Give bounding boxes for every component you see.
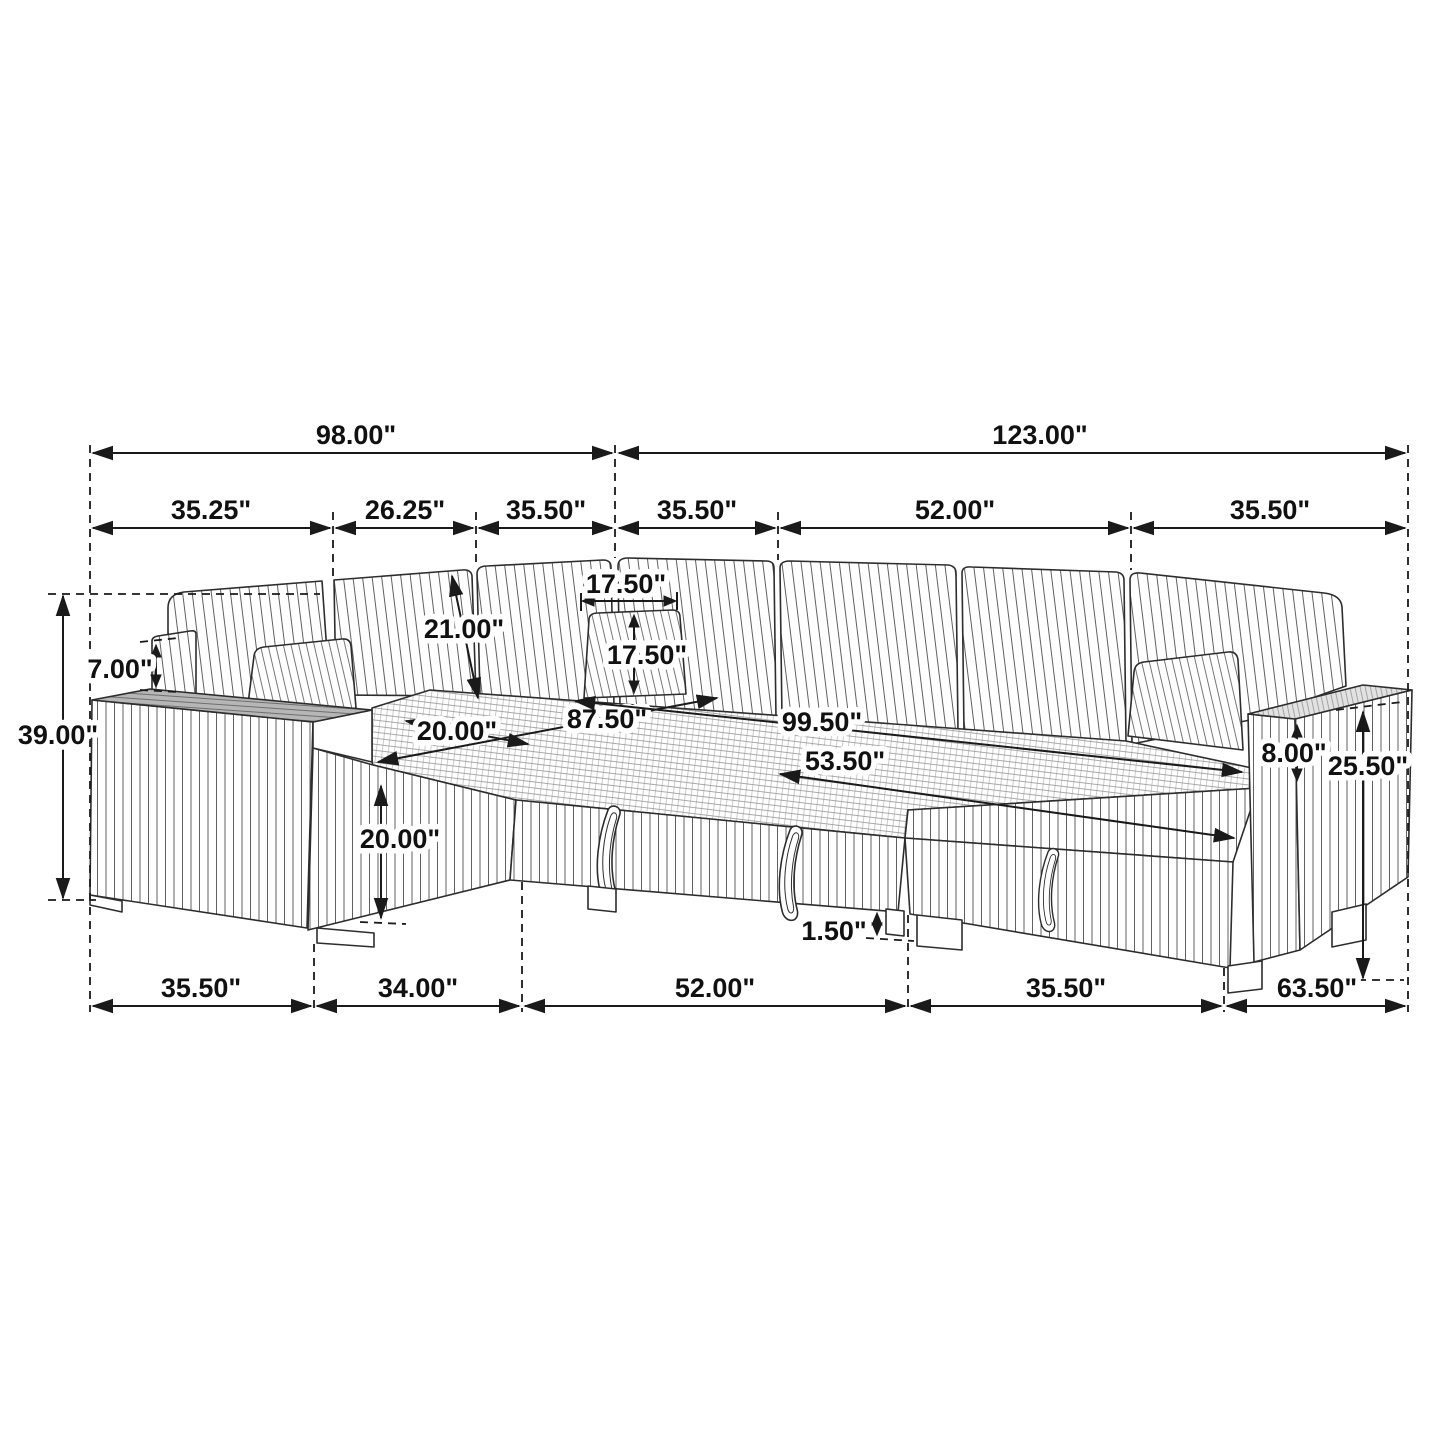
sofa-dimension-diagram: 98.00" 123.00" 35.25" 26.25" 35.50" 35.5… bbox=[0, 0, 1445, 1445]
left-arm-front-face bbox=[90, 700, 313, 928]
dim-label-front-seg-4: 35.50" bbox=[1026, 973, 1106, 1003]
dim-depth-seg-1: 35.25" bbox=[93, 495, 330, 528]
dim-label-front-seg-1: 35.50" bbox=[161, 973, 241, 1003]
dim-width-seg-3: 35.50" bbox=[1134, 495, 1405, 528]
back-cushion bbox=[962, 567, 1126, 743]
dim-label-width-seg-1: 35.50" bbox=[657, 495, 737, 525]
dim-width-seg-2: 52.00" bbox=[781, 495, 1128, 528]
dim-back-panel-height: 7.00" bbox=[87, 646, 156, 686]
sofa-dimension-diagram-page: 98.00" 123.00" 35.25" 26.25" 35.50" 35.5… bbox=[0, 0, 1445, 1445]
foot bbox=[317, 928, 374, 947]
dim-front-seg-4: 35.50" bbox=[911, 973, 1221, 1006]
foot bbox=[917, 915, 962, 950]
dim-label-arm-above-seat: 8.00" bbox=[1261, 738, 1326, 768]
dim-label-depth-seg-2: 26.25" bbox=[365, 495, 445, 525]
dim-label-backrest-length: 21.00" bbox=[424, 614, 504, 644]
dim-front-seg-2: 34.00" bbox=[317, 973, 519, 1006]
dim-front-seg-1: 35.50" bbox=[93, 973, 311, 1006]
dim-label-overall-height: 39.00" bbox=[18, 720, 98, 750]
dim-label-pillow-height: 17.50" bbox=[607, 640, 687, 670]
dim-label-bed-span: 53.50" bbox=[805, 746, 885, 776]
sofa-line-drawing bbox=[90, 558, 1412, 993]
dim-leg-height: 1.50" bbox=[801, 914, 877, 946]
foot bbox=[886, 909, 904, 936]
dim-label-pillow-width: 17.50" bbox=[586, 569, 666, 599]
dim-label-leg-height: 1.50" bbox=[801, 916, 866, 946]
dim-label-arm-total-height: 25.50" bbox=[1328, 751, 1408, 781]
dim-overall-width: 123.00" bbox=[619, 420, 1405, 453]
dim-overall-depth: 98.00" bbox=[93, 420, 612, 453]
dim-label-seat-height: 20.00" bbox=[360, 824, 440, 854]
dim-label-overall-depth: 98.00" bbox=[316, 420, 396, 450]
dim-depth-seg-3: 35.50" bbox=[479, 495, 612, 528]
foot bbox=[1332, 904, 1366, 947]
dim-label-width-seg-3: 35.50" bbox=[1230, 495, 1310, 525]
dim-label-overall-width: 123.00" bbox=[992, 420, 1087, 450]
dim-label-depth-seg-3: 35.50" bbox=[506, 495, 586, 525]
dim-label-back-panel-height: 7.00" bbox=[87, 654, 152, 684]
foot bbox=[588, 886, 616, 912]
dim-front-seg-3: 52.00" bbox=[525, 973, 905, 1006]
back-cushion bbox=[780, 561, 958, 731]
dim-label-front-seg-3: 52.00" bbox=[675, 973, 755, 1003]
dim-label-depth-seg-1: 35.25" bbox=[171, 495, 251, 525]
pillow-right bbox=[1128, 652, 1243, 750]
dim-label-seat-span-back: 99.50" bbox=[782, 707, 862, 737]
dim-overall-height: 39.00" bbox=[18, 596, 98, 898]
foot bbox=[1228, 961, 1262, 993]
dim-label-seat-span-left: 87.50" bbox=[567, 704, 647, 734]
dim-label-front-seg-5: 63.50" bbox=[1277, 973, 1357, 1003]
dim-width-seg-1: 35.50" bbox=[619, 495, 775, 528]
dim-label-front-seg-2: 34.00" bbox=[378, 973, 458, 1003]
dim-depth-seg-2: 26.25" bbox=[336, 495, 473, 528]
dim-label-width-seg-2: 52.00" bbox=[915, 495, 995, 525]
